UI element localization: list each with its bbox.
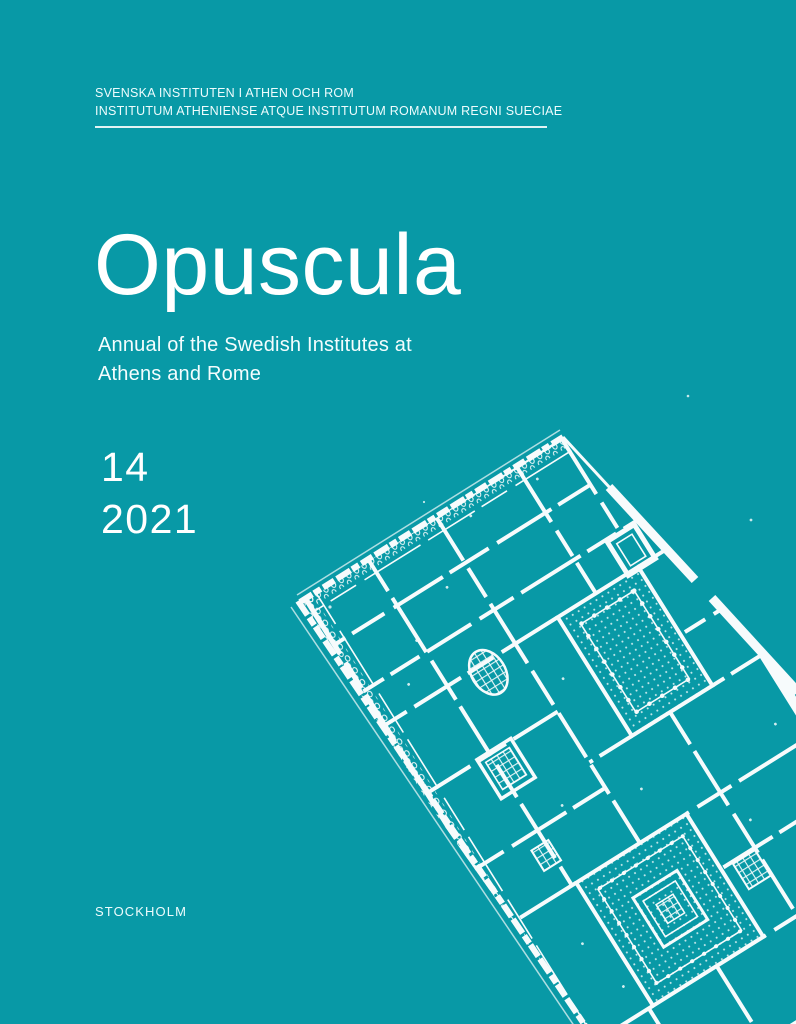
volume-number: 14 [101,441,198,493]
subtitle-line2: Athens and Rome [98,363,261,385]
issue-year: 2021 [101,493,198,545]
journal-cover: SVENSKA INSTITUTEN I ATHEN OCH ROM INSTI… [0,0,796,1024]
masthead-divider [95,126,547,128]
issue-block: 14 2021 [101,441,198,545]
subtitle-line1: Annual of the Swedish Institutes at [98,334,412,356]
plan-group [291,362,796,1024]
masthead-line2: INSTITUTUM ATHENIENSE ATQUE INSTITUTUM R… [95,102,562,120]
masthead-line1: SVENSKA INSTITUTEN I ATHEN OCH ROM [95,84,562,102]
imprint-city: STOCKHOLM [95,904,187,919]
masthead: SVENSKA INSTITUTEN I ATHEN OCH ROM INSTI… [95,84,562,120]
journal-title: Opuscula [94,222,461,308]
journal-subtitle: Annual of the Swedish Institutes atAthen… [98,331,412,388]
